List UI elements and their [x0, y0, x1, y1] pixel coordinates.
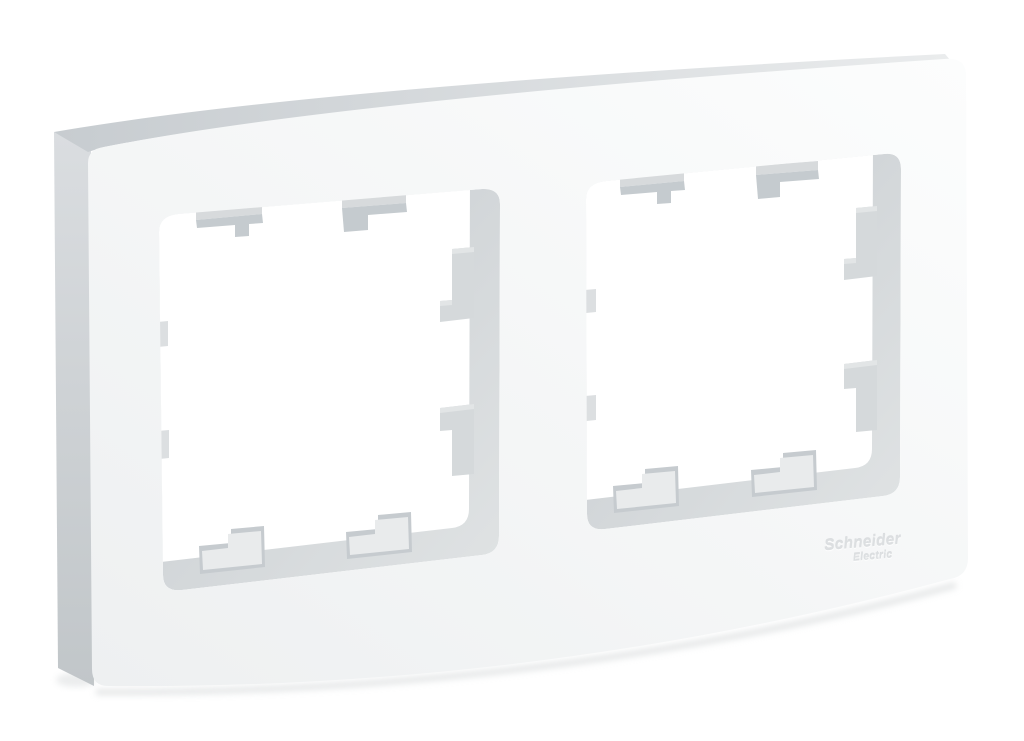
wall-frame-product-image: Schneider Electric: [0, 0, 1024, 741]
clip-side-strip: [440, 300, 452, 306]
clip-side-strip: [844, 258, 856, 264]
opening-right-interior: [558, 126, 873, 501]
opening-right: [558, 126, 901, 529]
opening-left-interior: [129, 162, 470, 563]
frame-left-side-face: [54, 132, 94, 686]
edge-nub: [585, 289, 596, 313]
product-photo-stage: Schneider Electric: [0, 0, 1024, 741]
opening-left: [129, 162, 500, 590]
